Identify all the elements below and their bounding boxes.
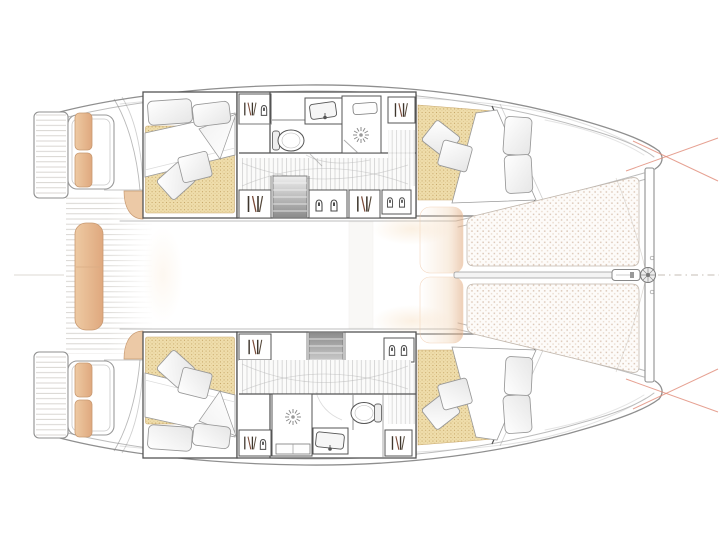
floor-plan-svg bbox=[0, 0, 720, 539]
locker-cabinet bbox=[239, 334, 271, 360]
storage-cabinet bbox=[384, 338, 414, 362]
cockpit-glow bbox=[143, 227, 183, 323]
saloon-structure-hint bbox=[349, 222, 373, 328]
cockpit-table bbox=[75, 223, 103, 330]
bed-pillow bbox=[504, 154, 533, 193]
bed-pillow bbox=[503, 116, 533, 156]
bowsprit-rod bbox=[454, 272, 614, 278]
companionway-stairs bbox=[271, 176, 309, 218]
sink-basin bbox=[309, 101, 337, 119]
transom-step bbox=[75, 113, 92, 150]
sink-vanity bbox=[305, 98, 342, 124]
locker-cabinet bbox=[349, 190, 380, 218]
annotation-line bbox=[626, 138, 718, 171]
locker-cabinet bbox=[385, 430, 412, 456]
storage-cabinet bbox=[382, 190, 411, 214]
toilet bbox=[273, 130, 305, 151]
catamaran-floor-plan bbox=[0, 0, 720, 539]
port-midship bbox=[237, 92, 416, 218]
storage-cabinet bbox=[309, 190, 347, 218]
swim-platform bbox=[34, 112, 114, 198]
starboard-midship bbox=[237, 332, 416, 458]
side-deck-line bbox=[114, 99, 140, 190]
forepeak-line bbox=[545, 120, 644, 155]
bed-pillow bbox=[147, 98, 193, 125]
forward-cabin bbox=[416, 94, 544, 216]
bed-pillow bbox=[192, 101, 231, 127]
sink-vanity bbox=[313, 428, 348, 454]
cabin-entry-floor bbox=[388, 130, 415, 186]
locker-cabinet bbox=[388, 97, 415, 123]
shower bbox=[272, 394, 312, 456]
locker-cabinet bbox=[239, 190, 271, 218]
side-deck-line-2 bbox=[122, 97, 143, 188]
aft-cabin bbox=[143, 92, 237, 218]
shower bbox=[342, 96, 381, 153]
toilet bbox=[351, 403, 382, 424]
corridor-floor bbox=[239, 158, 411, 190]
corridor-floor bbox=[239, 360, 411, 394]
transom-step bbox=[75, 153, 92, 187]
aft-cockpit bbox=[66, 196, 183, 354]
shower-shelf bbox=[353, 102, 378, 115]
